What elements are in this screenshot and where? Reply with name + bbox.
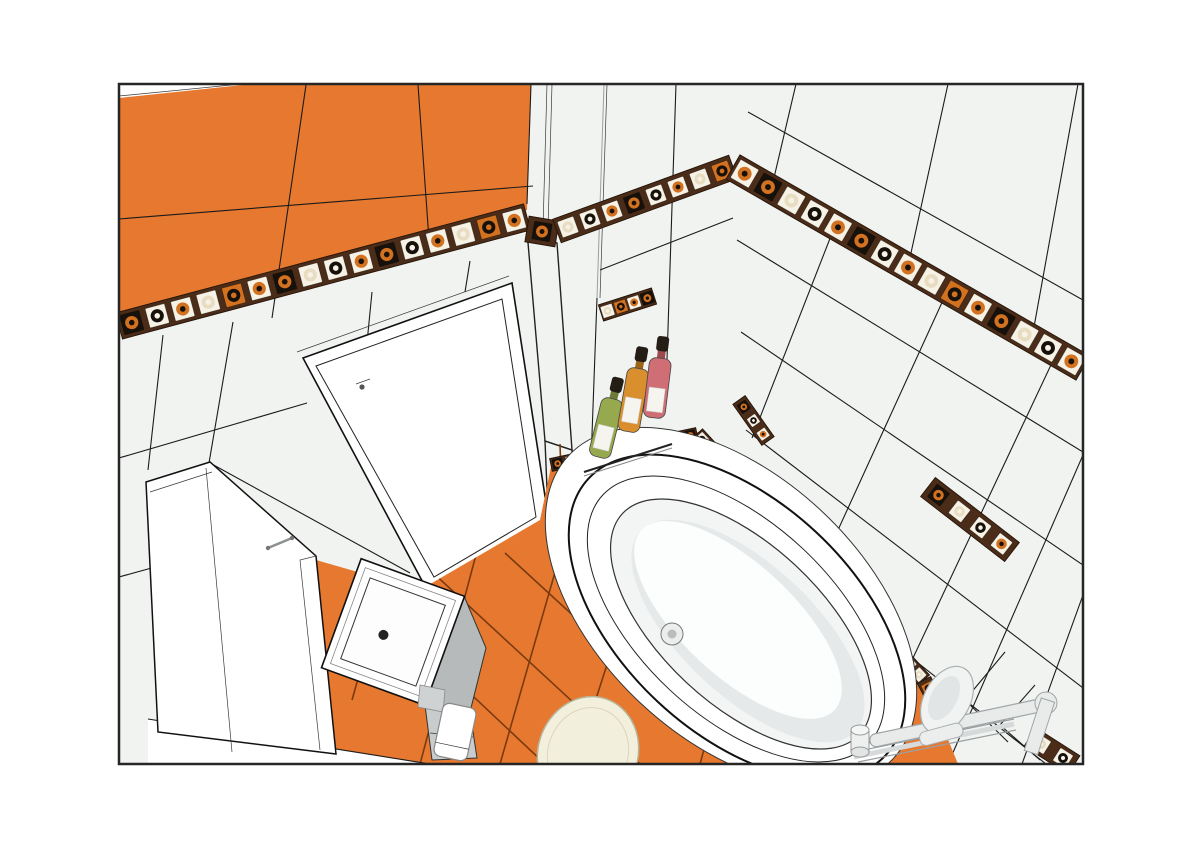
- render-canvas: [0, 0, 1200, 848]
- door-handle: [359, 384, 364, 389]
- deck-control: [851, 725, 869, 757]
- render-viewport: [116, 83, 1090, 848]
- bathroom-render-page: [0, 0, 1200, 848]
